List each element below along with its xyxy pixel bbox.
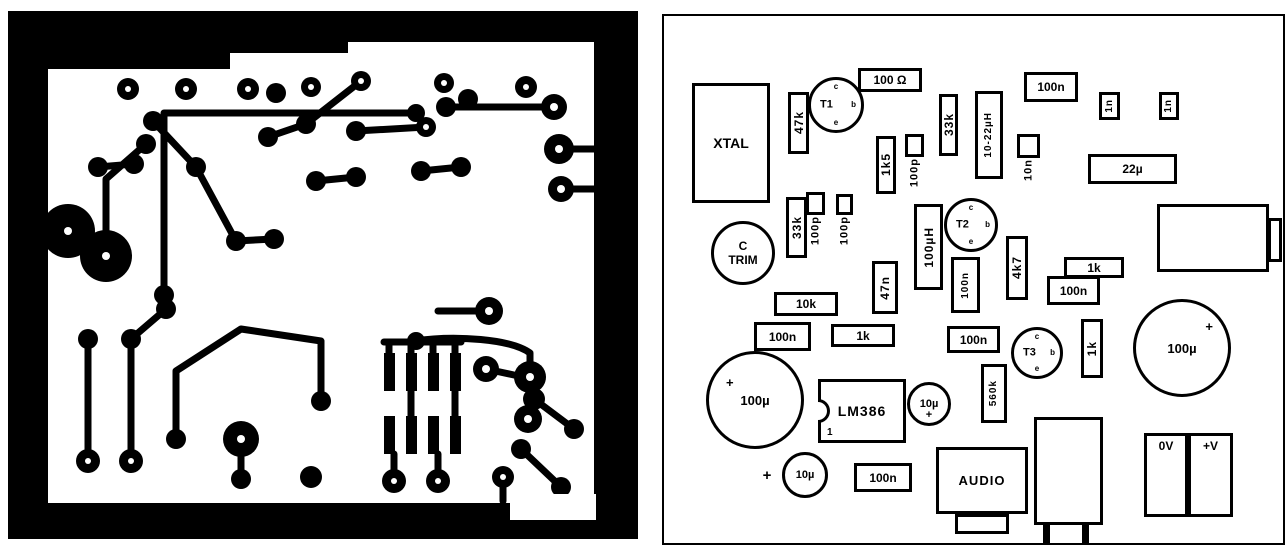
inductor-100uH: 100µH — [914, 204, 943, 290]
terminal-0v: 0V — [1144, 433, 1188, 517]
phones-connector-tab-0 — [1268, 218, 1282, 262]
resistor-1k-mid: 1k — [831, 324, 895, 347]
cap-100u-right-label: 100µ — [1167, 342, 1196, 355]
pcb-track-panel — [6, 9, 640, 541]
cap-10u-a-label: 10µ — [920, 399, 939, 410]
cap-10u-b-label: 10µ — [796, 470, 815, 481]
cap-100u-left-polarity-mark: + — [726, 376, 734, 389]
phones-connector — [1157, 204, 1269, 272]
transistor-t2: T2cbe — [944, 198, 998, 252]
cap-100n-top: 100n — [1024, 72, 1078, 102]
cap-100n-left-label: 100n — [769, 331, 796, 343]
terminal-0v-label: 0V — [1159, 440, 1174, 452]
cap-10n-label: 10n — [1023, 159, 1034, 181]
ic-lm386-pin1-label: 1 — [827, 428, 833, 438]
cap-1n-b-label: 1n — [1164, 99, 1174, 113]
ic-lm386-pin1-notch — [818, 399, 830, 423]
transistor-t2-label: T2 — [956, 220, 969, 231]
ic-lm386-label: LM386 — [838, 404, 887, 418]
unlabeled-connector-tab-1 — [1082, 525, 1089, 544]
trimmer-c-trim-label: CTRIM — [728, 240, 757, 266]
resistor-1k-right-label: 1k — [1087, 262, 1100, 274]
resistor-1k-vert: 1k — [1081, 319, 1103, 378]
resistor-47k-label: 47k — [793, 111, 805, 134]
cap-1n-a-label: 1n — [1105, 99, 1115, 113]
page: { "page": { "paper_color": "#ffffff", "i… — [0, 0, 1288, 552]
cap-100u-right: 100µ+ — [1133, 299, 1231, 397]
cap-100n-bottom-label: 100n — [869, 472, 896, 484]
cap-100u-right-polarity-mark: + — [1205, 320, 1213, 333]
pcb-artwork — [6, 9, 640, 541]
cap-100p-c: 100p — [836, 194, 853, 215]
inductor-10-22uH-label: 10-22µH — [984, 112, 994, 158]
cap-1n-a: 1n — [1099, 92, 1120, 120]
resistor-1k5-label: 1k5 — [880, 153, 892, 176]
cap-47n: 47n — [872, 261, 898, 314]
transistor-t3-pin-e: e — [1035, 365, 1039, 373]
resistor-560k: 560k — [981, 364, 1007, 423]
cap-100n-t2: 100n — [951, 257, 980, 313]
transistor-t1-pin-c: c — [834, 83, 838, 91]
inductor-100uH-label: 100µH — [923, 227, 935, 268]
resistor-4k7: 4k7 — [1006, 236, 1028, 300]
plus-mark-10u-b: + — [759, 467, 775, 483]
transistor-t1-pin-e: e — [834, 119, 838, 127]
resistor-33k-top-label: 33k — [943, 113, 955, 136]
inductor-10-22uH: 10-22µH — [975, 91, 1003, 179]
transistor-t3: T3cbe — [1011, 327, 1063, 379]
resistor-33k-mid-label: 33k — [791, 216, 803, 239]
transistor-t1-label: T1 — [820, 100, 833, 111]
cap-100u-left: 100µ+ — [706, 351, 804, 449]
cap-100n-t3-label: 100n — [960, 334, 987, 346]
unlabeled-connector-tab-0 — [1043, 525, 1050, 544]
resistor-47k: 47k — [788, 92, 809, 154]
cap-22u-label: 22µ — [1122, 163, 1142, 175]
plus-mark-10u-b-label: + — [763, 468, 772, 483]
cap-22u: 22µ — [1088, 154, 1177, 184]
cap-10u-a-polarity-mark: + — [926, 410, 932, 421]
terminal-plus-v: +V — [1188, 433, 1233, 517]
cap-100p-b-label: 100p — [810, 216, 821, 245]
resistor-33k-top: 33k — [939, 94, 958, 156]
cap-100u-left-label: 100µ — [740, 394, 769, 407]
audio-connector-label: AUDIO — [959, 474, 1006, 487]
cap-47n-label: 47n — [879, 276, 891, 300]
cap-10n: 10n — [1017, 134, 1040, 158]
resistor-10k: 10k — [774, 292, 838, 316]
resistor-4k7-label: 4k7 — [1011, 256, 1023, 279]
unlabeled-connector — [1034, 417, 1103, 525]
resistor-10k-label: 10k — [796, 298, 816, 310]
transistor-t2-pin-b: b — [985, 221, 990, 229]
cap-100n-bottom: 100n — [854, 463, 912, 492]
audio-connector: AUDIO — [936, 447, 1028, 514]
transistor-t3-pin-c: c — [1035, 333, 1039, 341]
component-overlay-panel: XTAL47kT1cbe100 Ω1k5100p33k10-22µH100n1n… — [655, 8, 1285, 545]
xtal: XTAL — [692, 83, 770, 203]
component-layer: XTAL47kT1cbe100 Ω1k5100p33k10-22µH100n1n… — [655, 8, 1285, 545]
cap-100n-right: 100n — [1047, 276, 1100, 305]
resistor-1k-mid-label: 1k — [856, 330, 869, 342]
cap-100n-t3: 100n — [947, 326, 1000, 353]
resistor-1k-right: 1k — [1064, 257, 1124, 278]
transistor-t1: T1cbe — [808, 77, 864, 133]
cap-10u-a: 10µ+ — [907, 382, 951, 426]
transistor-t3-label: T3 — [1023, 348, 1036, 359]
ic-lm386: LM3861 — [818, 379, 906, 443]
cap-100n-right-label: 100n — [1060, 285, 1087, 297]
cap-100n-left: 100n — [754, 322, 811, 351]
cap-100n-top-label: 100n — [1037, 81, 1064, 93]
terminal-plus-v-label: +V — [1203, 440, 1218, 452]
transistor-t2-pin-e: e — [969, 238, 973, 246]
trimmer-c-trim: CTRIM — [711, 221, 775, 285]
transistor-t3-pin-b: b — [1050, 349, 1055, 357]
cap-10u-b: 10µ — [782, 452, 828, 498]
cap-100p-a-label: 100p — [909, 158, 920, 187]
resistor-560k-label: 560k — [989, 380, 999, 406]
transistor-t2-pin-c: c — [969, 204, 973, 212]
cap-100n-t2-label: 100n — [961, 272, 971, 299]
resistor-100ohm: 100 Ω — [858, 68, 922, 92]
audio-connector-tab-0 — [955, 514, 1009, 534]
xtal-label: XTAL — [713, 136, 749, 150]
cap-100p-c-label: 100p — [839, 216, 850, 245]
cap-1n-b: 1n — [1159, 92, 1179, 120]
cap-100p-b: 100p — [806, 192, 825, 215]
transistor-t1-pin-b: b — [851, 101, 856, 109]
resistor-100ohm-label: 100 Ω — [874, 74, 907, 86]
resistor-33k-mid: 33k — [786, 197, 807, 258]
pcb-label-window — [510, 494, 596, 520]
cap-100p-a: 100p — [905, 134, 924, 157]
resistor-1k5: 1k5 — [876, 136, 896, 194]
resistor-1k-vert-label: 1k — [1086, 341, 1098, 356]
